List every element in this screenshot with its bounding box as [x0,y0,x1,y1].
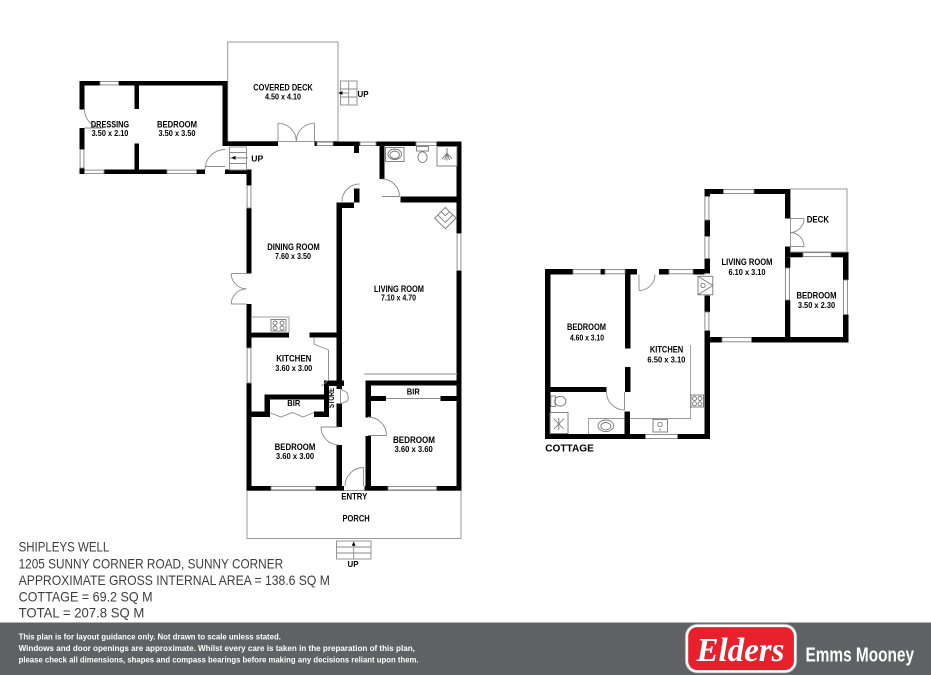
svg-text:BIR: BIR [407,387,420,397]
svg-text:ENTRY: ENTRY [341,491,367,501]
svg-text:This plan is for layout guidan: This plan is for layout guidance only. N… [19,632,281,641]
svg-text:DECK: DECK [807,214,830,224]
svg-text:LIVING ROOM: LIVING ROOM [722,257,773,267]
svg-text:3.50 x 2.10: 3.50 x 2.10 [92,128,129,138]
svg-text:COTTAGE = 69.2 SQ M: COTTAGE = 69.2 SQ M [19,589,153,605]
svg-text:COTTAGE: COTTAGE [545,442,594,454]
svg-text:6.50 x 3.10: 6.50 x 3.10 [647,354,685,364]
svg-text:Windows and door openings are: Windows and door openings are approximat… [19,644,415,653]
svg-text:SHIPLEYS WELL: SHIPLEYS WELL [19,539,110,555]
svg-text:please check all dimensions, s: please check all dimensions, shapes and … [19,655,419,664]
svg-text:Elders: Elders [696,632,785,669]
svg-text:STORE: STORE [326,388,336,408]
svg-text:UP: UP [251,154,263,164]
svg-text:PORCH: PORCH [343,514,370,524]
svg-text:Emms Mooney: Emms Mooney [806,644,915,667]
svg-text:3.60 x 3.00: 3.60 x 3.00 [276,451,315,461]
svg-text:BIR: BIR [287,398,300,408]
svg-text:4.60 x 3.10: 4.60 x 3.10 [570,333,604,343]
svg-text:APPROXIMATE GROSS INTERNAL ARE: APPROXIMATE GROSS INTERNAL AREA = 138.6 … [19,572,330,588]
svg-text:7.60 x 3.50: 7.60 x 3.50 [275,251,311,261]
svg-text:UP: UP [358,89,369,99]
svg-text:6.10 x 3.10: 6.10 x 3.10 [729,267,766,277]
svg-text:3.60 x 3.60: 3.60 x 3.60 [394,444,433,454]
svg-text:TOTAL = 207.8 SQ M: TOTAL = 207.8 SQ M [19,605,145,621]
svg-text:1205 SUNNY CORNER ROAD, SUNNY: 1205 SUNNY CORNER ROAD, SUNNY CORNER [19,556,284,572]
svg-text:3.60 x 3.00: 3.60 x 3.00 [275,363,312,373]
svg-text:4.50 x 4.10: 4.50 x 4.10 [265,92,301,102]
svg-text:7.10 x 4.70: 7.10 x 4.70 [381,292,416,302]
svg-text:KITCHEN: KITCHEN [650,345,683,355]
svg-text:UP: UP [348,559,359,569]
svg-text:BEDROOM: BEDROOM [797,290,837,300]
svg-text:3.50 x 2.30: 3.50 x 2.30 [798,300,836,310]
svg-text:3.50 x 3.50: 3.50 x 3.50 [159,128,196,138]
svg-text:BEDROOM: BEDROOM [567,322,606,332]
